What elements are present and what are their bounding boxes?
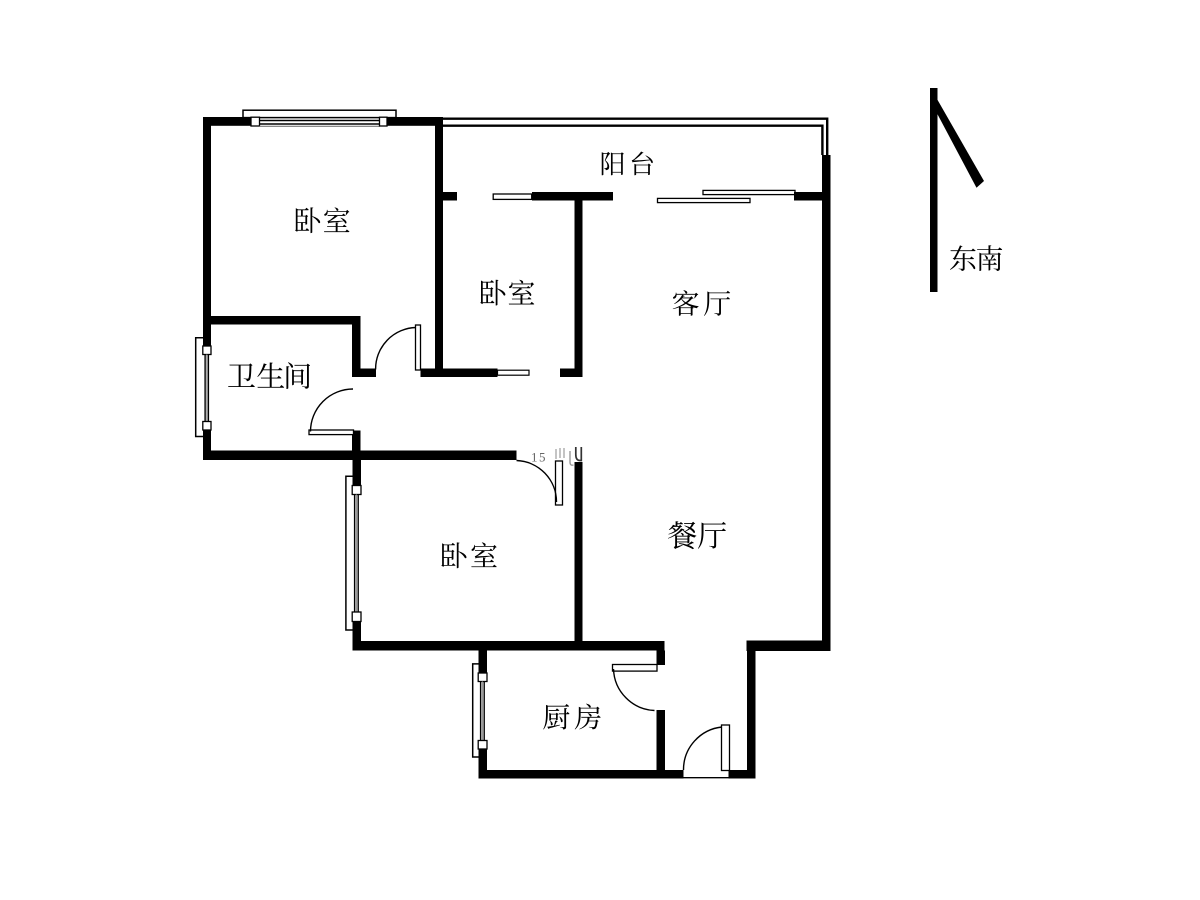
svg-text:15: 15 (531, 450, 547, 465)
